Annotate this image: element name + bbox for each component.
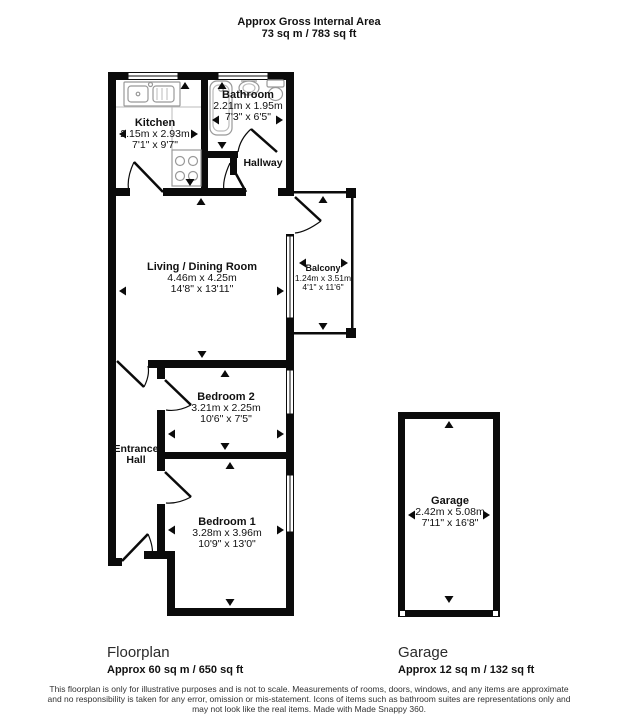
bathroom-window-icon — [218, 73, 268, 80]
room-imperial: 7'11" x 16'8" — [415, 518, 484, 529]
garage-footer-title: Garage — [398, 644, 534, 661]
disclaimer-line3: may not look like the real items. Made w… — [0, 704, 618, 714]
floorplan-drawing — [0, 0, 618, 720]
bedroom2-label: Bedroom 2 3.21m x 2.25m 10'6" x 7'5" — [191, 392, 260, 425]
floorplan-footer-title: Floorplan — [107, 644, 243, 661]
disclaimer-line2: and no responsibility is taken for any e… — [0, 694, 618, 704]
bathroom-door-icon — [238, 129, 277, 152]
disclaimer-line1: This floorplan is only for illustrative … — [0, 684, 618, 694]
header-title: Approx Gross Internal Area — [237, 16, 380, 28]
header-area: 73 sq m / 783 sq ft — [237, 28, 380, 40]
balcony-label: Balcony 1.24m x 3.51m 4'1" x 11'6" — [295, 264, 351, 293]
balcony-door-icon — [295, 197, 321, 233]
garage-label: Garage 2.42m x 5.08m 7'11" x 16'8" — [415, 496, 484, 529]
floorplan-footer-area: Approx 60 sq m / 650 sq ft — [107, 664, 243, 676]
room-imperial: 10'6" x 7'5" — [191, 414, 260, 425]
living-room-window-icon — [287, 236, 294, 318]
bedroom1-window-icon — [287, 475, 294, 532]
kitchen-sink-icon — [124, 82, 180, 106]
kitchen-label: Kitchen 2.15m x 2.93m 7'1" x 9'7" — [120, 118, 189, 151]
floorplan-footer: Floorplan Approx 60 sq m / 650 sq ft — [107, 644, 243, 676]
room-name-line1: Entrance — [114, 444, 159, 455]
disclaimer-text: This floorplan is only for illustrative … — [0, 684, 618, 714]
entrance-hall-label: Entrance Hall — [114, 444, 159, 465]
garage-footer: Garage Approx 12 sq m / 132 sq ft — [398, 644, 534, 676]
balcony-door-opening — [285, 196, 295, 234]
bedroom1-label: Bedroom 1 3.28m x 3.96m 10'9" x 13'0" — [192, 517, 261, 550]
bedroom2-door-icon — [165, 380, 191, 410]
garage-footer-area: Approx 12 sq m / 132 sq ft — [398, 664, 534, 676]
room-imperial: 14'8" x 13'11" — [147, 284, 257, 295]
gross-internal-area-header: Approx Gross Internal Area 73 sq m / 783… — [237, 16, 380, 40]
room-imperial: 7'1" x 9'7" — [120, 140, 189, 151]
bedroom2-window-icon — [287, 370, 294, 414]
room-imperial: 4'1" x 11'6" — [295, 283, 351, 293]
room-name: Hallway — [243, 158, 282, 169]
living-room-label: Living / Dining Room 4.46m x 4.25m 14'8"… — [147, 262, 257, 295]
kitchen-window-icon — [128, 73, 178, 80]
room-imperial: 7'3" x 6'5" — [213, 112, 282, 123]
living-to-hall-door-icon — [117, 361, 149, 387]
bathroom-label: Bathroom 2.21m x 1.95m 7'3" x 6'5" — [213, 90, 282, 123]
hallway-label: Hallway — [243, 158, 282, 169]
kitchen-hob-icon — [172, 150, 201, 186]
room-imperial: 10'9" x 13'0" — [192, 539, 261, 550]
floorplan-page: Approx Gross Internal Area 73 sq m / 783… — [0, 0, 618, 720]
bedroom1-door-icon — [165, 472, 191, 503]
room-name-line2: Hall — [114, 455, 159, 466]
kitchen-door-icon — [128, 162, 163, 192]
